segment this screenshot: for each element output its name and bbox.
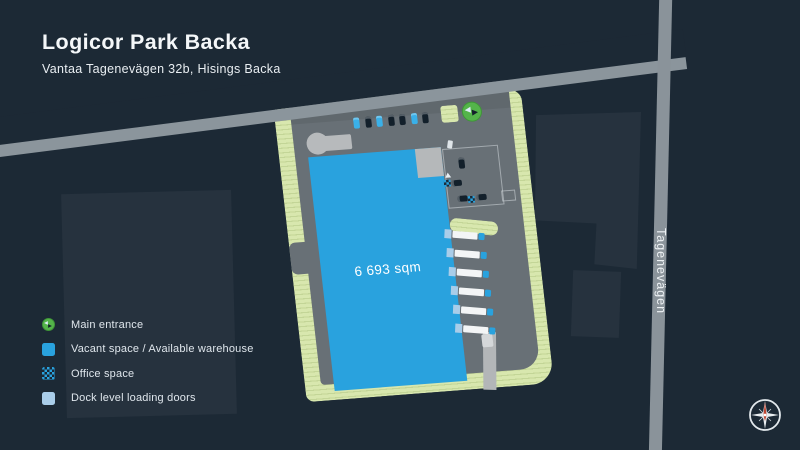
compass-icon (745, 395, 785, 435)
dock-door (446, 248, 453, 258)
neighbor-building-right (535, 112, 641, 269)
parked-car (387, 115, 394, 126)
parked-car (458, 157, 465, 168)
truck-trailer (459, 287, 484, 296)
truck-cab (485, 289, 491, 296)
green-island-small (440, 105, 459, 123)
truck-trailer (452, 230, 477, 239)
parked-car (457, 195, 468, 202)
main-entrance-icon (42, 318, 55, 331)
page-title: Logicor Park Backa (42, 30, 250, 55)
legend: Main entrance Vacant space / Available w… (42, 318, 254, 416)
office-space-marker (443, 179, 451, 186)
truck-cab (478, 232, 484, 239)
truck-cab (487, 308, 493, 315)
area-label: 6 693 sqm (354, 259, 422, 279)
parked-car (376, 116, 383, 127)
legend-label: Office space (71, 368, 134, 380)
pedestrian-icon (445, 172, 452, 177)
legend-label: Vacant space / Available warehouse (71, 343, 254, 355)
site-plan-page: 6 693 sqm Tagenevägen Logicor Park Backa… (0, 0, 800, 450)
truck-trailer (463, 325, 488, 334)
dock-door (444, 229, 451, 239)
silo-building (317, 134, 353, 152)
site-plan: 6 693 sqm (272, 77, 556, 404)
truck-cab (489, 327, 495, 334)
office-block (415, 147, 444, 178)
dock-door (453, 304, 460, 314)
neighbor-building-right-small (571, 270, 621, 338)
dock-door (455, 323, 462, 333)
truck-cab (481, 251, 487, 258)
truck-cab (483, 270, 489, 277)
parked-car (364, 116, 371, 127)
legend-item-vacant-space: Vacant space / Available warehouse (42, 343, 254, 356)
dock-door (451, 285, 458, 295)
parked-car (410, 113, 417, 124)
ramp-vehicle (481, 334, 493, 348)
side-exit-road (289, 242, 311, 275)
truck-trailer (454, 249, 479, 258)
legend-label: Main entrance (71, 319, 143, 331)
scooter-icon (447, 140, 453, 149)
road-name-label: Tagenevägen (648, 196, 674, 346)
parked-car (422, 112, 429, 123)
arrow-right-icon (472, 109, 479, 115)
legend-item-office-space: Office space (42, 367, 254, 380)
legend-label: Dock level loading doors (71, 392, 196, 404)
parked-car (476, 194, 487, 201)
truck-trailer (457, 268, 482, 277)
page-subtitle: Vantaa Tagenevägen 32b, Hisings Backa (42, 62, 281, 76)
office-space-marker (467, 196, 475, 203)
vacant-space-icon (42, 343, 55, 356)
gate (501, 190, 516, 202)
arrow-left-icon (464, 106, 471, 112)
legend-item-main-entrance: Main entrance (42, 318, 254, 331)
parked-car (399, 114, 406, 125)
dock-door (449, 266, 456, 276)
parked-car (353, 117, 360, 128)
office-space-icon (42, 367, 55, 380)
parked-car (452, 180, 463, 187)
truck-trailer (461, 306, 486, 315)
legend-item-dock-doors: Dock level loading doors (42, 392, 254, 405)
dock-doors-icon (42, 392, 55, 405)
